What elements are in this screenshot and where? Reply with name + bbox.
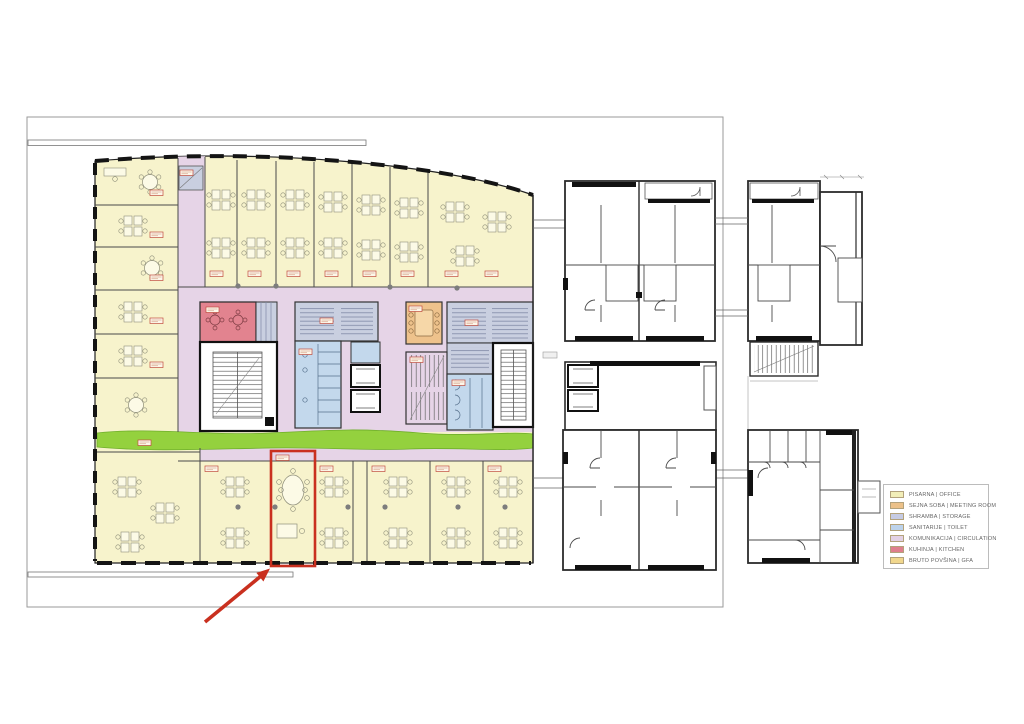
legend-label-circulation: KOMUNIKACIJA | CIRCULATION — [909, 536, 997, 542]
bottom-facade-line — [28, 572, 293, 577]
storage-closet — [256, 302, 277, 342]
legend-box: PISARNA | OFFICE SEJNA SOBA | MEETING RO… — [883, 484, 989, 569]
legend-label-gfa: BRUTO POVŠINA | GFA — [909, 558, 973, 564]
legend-swatch-office — [890, 491, 904, 498]
apartment-block-b2 — [748, 430, 880, 563]
legend-swatch-toilet — [890, 524, 904, 531]
apartment-block-t1 — [563, 181, 715, 341]
legend-swatch-gfa — [890, 557, 904, 564]
apartment-block-t2 — [748, 175, 864, 345]
legend-item-storage: SHRAMBA | STORAGE — [890, 511, 988, 522]
legend-swatch-circulation — [890, 535, 904, 542]
legend-label-kitchen: KUHINJA | KITCHEN — [909, 547, 964, 553]
top-facade-line — [28, 140, 366, 146]
legend-item-gfa: BRUTO POVŠINA | GFA — [890, 555, 988, 566]
core — [200, 302, 533, 431]
legend-label-meeting-room: SEJNA SOBA | MEETING ROOM — [909, 503, 996, 509]
legend-swatch-kitchen — [890, 546, 904, 553]
apartment-wing-plan — [543, 175, 880, 570]
legend-item-kitchen: KUHINJA | KITCHEN — [890, 544, 988, 555]
office-building-plan — [95, 155, 565, 563]
floor-plan-drawing — [0, 0, 1024, 724]
pointer-arrow-shaft — [205, 576, 261, 622]
legend-item-meeting-room: SEJNA SOBA | MEETING ROOM — [890, 500, 988, 511]
elevator-1 — [351, 365, 380, 387]
legend-label-office: PISARNA | OFFICE — [909, 492, 961, 498]
legend-item-circulation: KOMUNIKACIJA | CIRCULATION — [890, 533, 988, 544]
toilet-small — [351, 342, 380, 363]
legend-item-office: PISARNA | OFFICE — [890, 489, 988, 500]
legend-item-toilet: SANITARIJE | TOILET — [890, 522, 988, 533]
page: PISARNA | OFFICE SEJNA SOBA | MEETING RO… — [0, 0, 1024, 724]
grid-label — [543, 352, 557, 358]
legend-label-toilet: SANITARIJE | TOILET — [909, 525, 968, 531]
apartment-block-b1 — [563, 361, 716, 570]
elevator-2 — [351, 390, 380, 412]
stair-annex — [748, 342, 818, 430]
shaft-box — [265, 417, 274, 426]
legend-swatch-meeting-room — [890, 502, 904, 509]
legend-swatch-storage — [890, 513, 904, 520]
legend-label-storage: SHRAMBA | STORAGE — [909, 514, 971, 520]
bridge-links — [715, 218, 748, 478]
